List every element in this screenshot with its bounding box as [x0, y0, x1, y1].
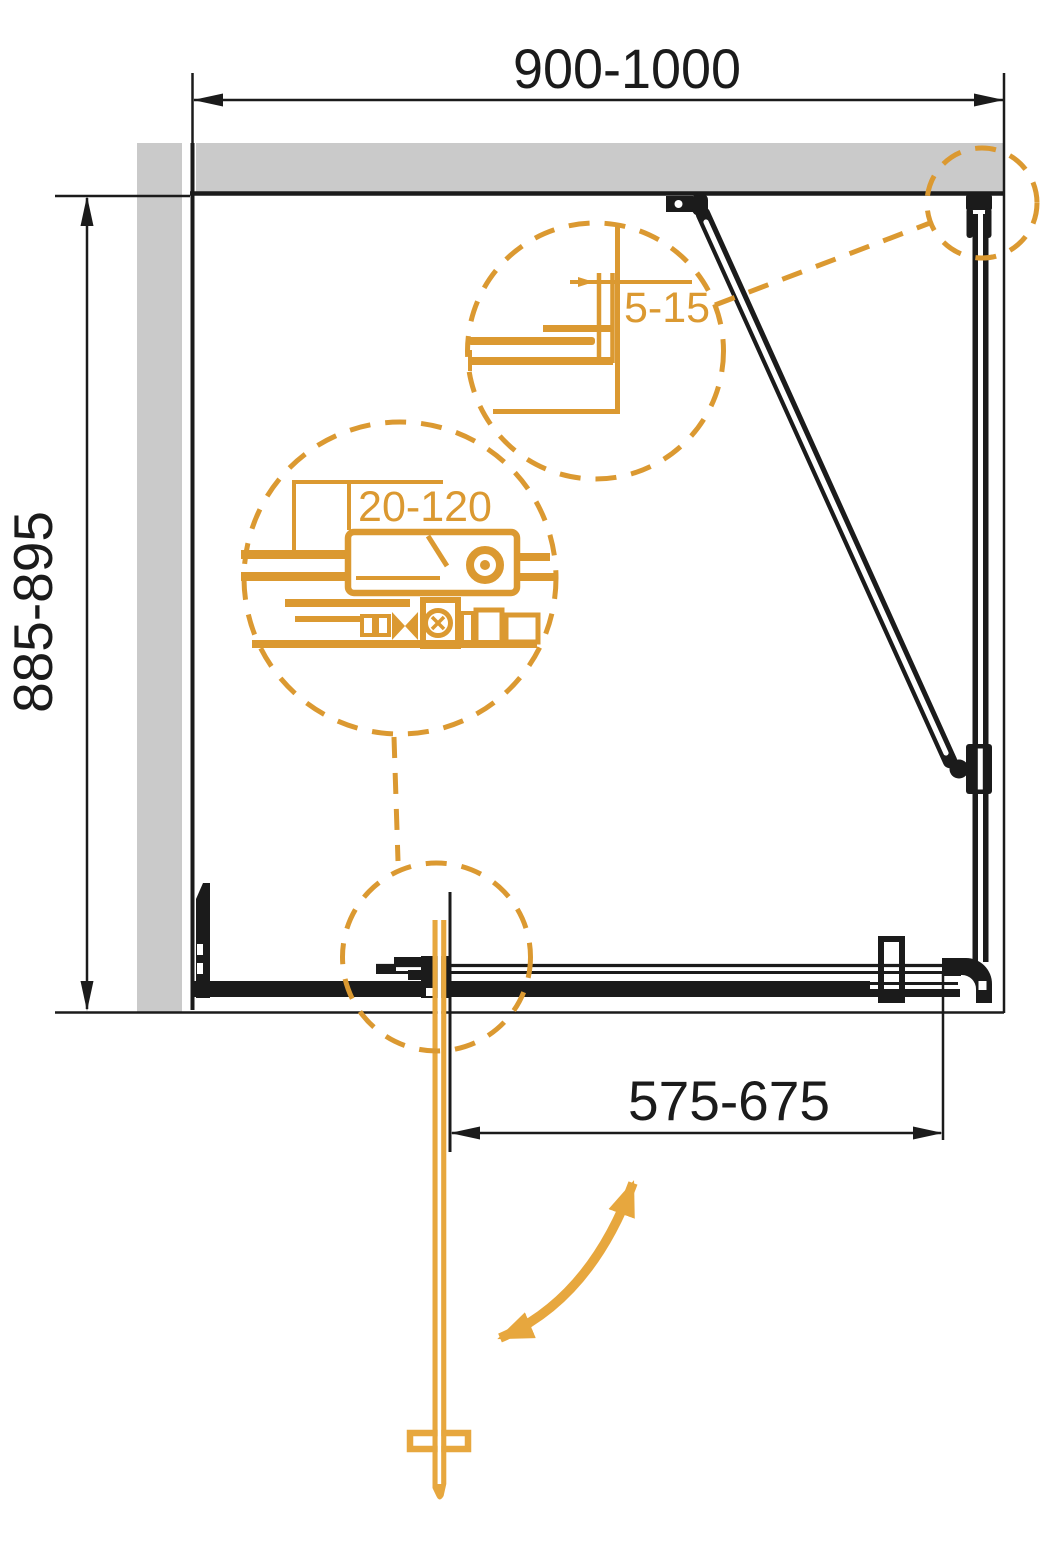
profile-bar — [468, 337, 595, 345]
lower-bar — [285, 599, 410, 607]
overall-width-label: 900-1000 — [513, 37, 741, 100]
end-block — [506, 615, 538, 642]
screw-hole — [675, 200, 683, 208]
elbow-notch — [979, 981, 987, 990]
bracket-stub — [967, 208, 974, 238]
enclosure-frame — [55, 73, 1004, 1013]
top-wall — [196, 143, 1005, 193]
rail-bar — [241, 572, 348, 581]
arrow-right-icon — [974, 94, 1004, 107]
door-glass-core — [706, 222, 946, 753]
door-open-glass-edge — [433, 920, 438, 1484]
gap-arrow-icon — [578, 277, 594, 287]
arrow-up-icon — [81, 196, 94, 226]
rail-bar — [517, 553, 550, 561]
arrow-right-icon — [913, 1127, 943, 1140]
arrow-left-icon — [450, 1127, 480, 1140]
callout-circle-wall-gap — [468, 223, 724, 479]
housing-diagonal — [428, 536, 447, 566]
bracket-adjustment-label: 20-120 — [358, 483, 492, 531]
threshold-bar — [193, 981, 870, 997]
foot-block — [362, 616, 374, 635]
foot-block — [377, 616, 389, 635]
hinge-knuckle-top — [692, 194, 708, 216]
profile-notch — [197, 963, 203, 974]
left-wall-profile — [196, 883, 210, 998]
profile-notch — [197, 944, 203, 955]
callout-connector — [715, 223, 930, 305]
profile-bar — [468, 357, 613, 365]
door-open — [410, 920, 468, 1500]
bowtie-right — [405, 612, 418, 640]
detail-bracket-adjustment: 20-120 — [241, 482, 557, 648]
diagram-canvas: 900-1000 885-895 575-675 — [0, 0, 1063, 1545]
arrow-left-icon — [193, 94, 223, 107]
pivot-tab — [408, 970, 422, 980]
lower-bar — [295, 616, 362, 622]
door-swing-arrow — [500, 1183, 633, 1338]
callout-connector — [394, 737, 398, 861]
hinge-knuckle-bottom — [950, 760, 969, 779]
rod-center — [480, 560, 490, 570]
rail-bar — [241, 550, 348, 559]
bowtie-left — [392, 612, 405, 640]
overall-depth-label: 885-895 — [2, 511, 64, 713]
wall-gap-label: 5-15 — [624, 284, 710, 332]
wall-mount-bracket — [966, 195, 992, 210]
door-opening-label: 575-675 — [628, 1069, 830, 1132]
door-open-glass-core — [438, 920, 441, 1484]
arrow-down-icon — [81, 981, 94, 1011]
pivot-bracket — [394, 957, 422, 967]
clamp-block — [462, 613, 473, 643]
door-closed — [666, 194, 969, 779]
bottom-rail — [193, 883, 992, 1003]
clamp-block — [476, 610, 502, 645]
threshold-bar-right — [862, 989, 960, 997]
rail-step — [376, 964, 396, 974]
shower-enclosure-plan-diagram: 900-1000 885-895 575-675 — [0, 0, 1063, 1545]
panel-glass-line — [973, 214, 979, 962]
bracket-stub — [985, 208, 992, 238]
dimension-door-opening: 575-675 — [450, 892, 943, 1152]
door-open-glass-edge — [441, 920, 446, 1484]
profile-bar — [543, 325, 613, 332]
pivot-notch — [426, 988, 433, 996]
door-edge-tip — [433, 1484, 447, 1500]
left-wall — [137, 143, 182, 1012]
dimension-overall-width: 900-1000 — [193, 37, 1005, 143]
swing-arc-icon — [500, 1183, 633, 1338]
rail-bar — [517, 573, 557, 581]
panel-glass-line — [983, 214, 989, 962]
clamp-slot — [978, 749, 983, 790]
fixed-panel — [966, 195, 992, 962]
